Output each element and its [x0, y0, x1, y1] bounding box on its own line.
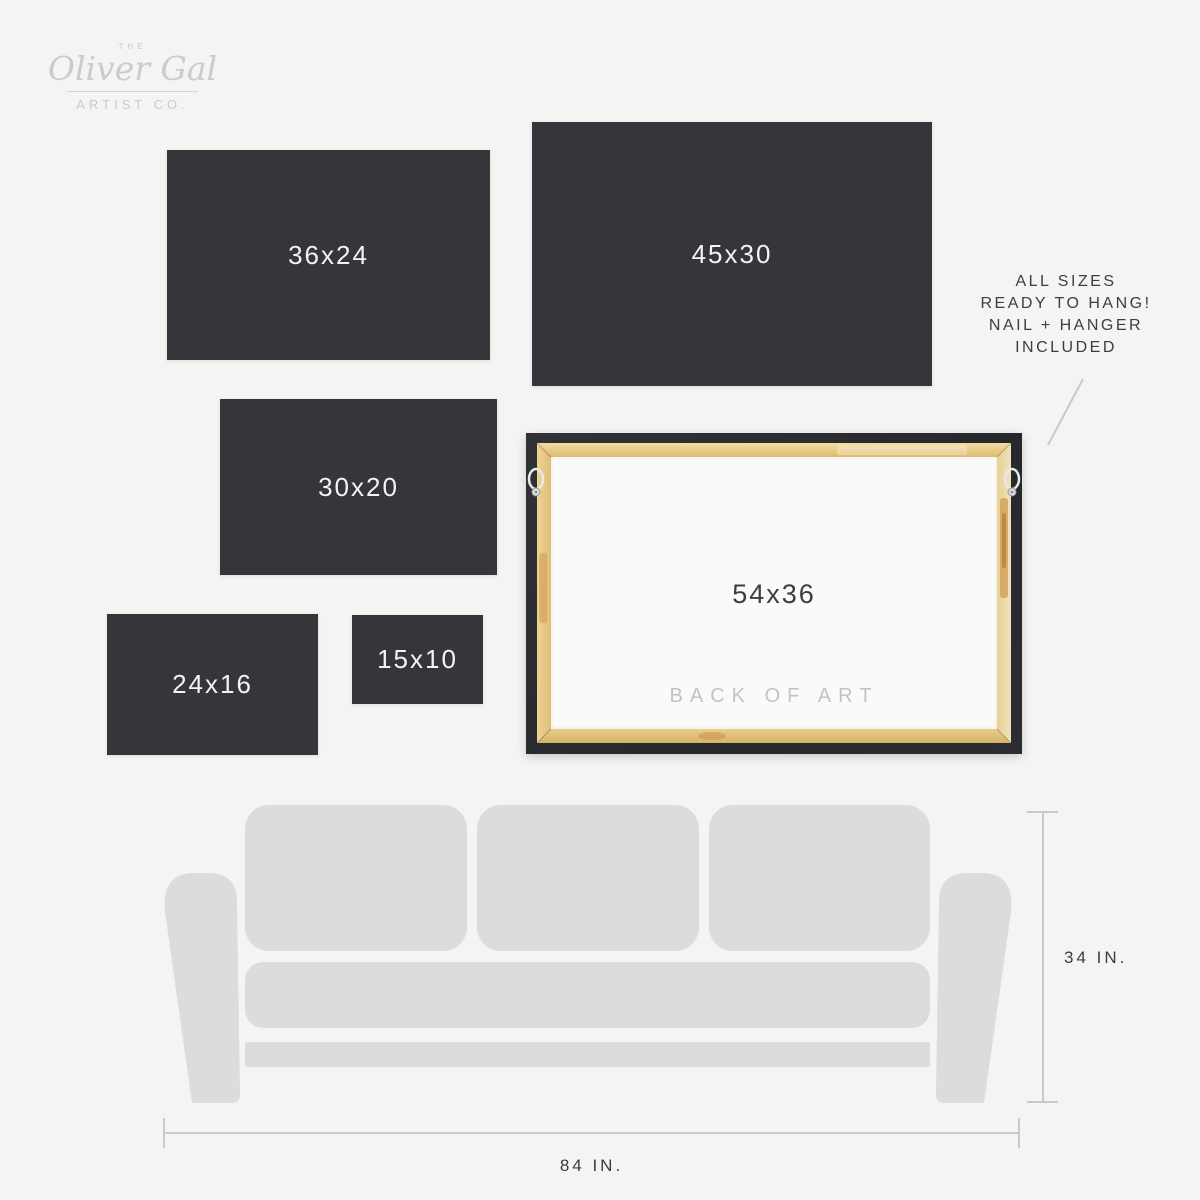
size-label: 15x10: [377, 644, 458, 675]
size-swatch-30x20: 30x20: [220, 399, 497, 575]
size-swatch-15x10: 15x10: [352, 615, 483, 704]
note-pointer-line: [1040, 374, 1090, 452]
height-measure-cap-top: [1027, 811, 1058, 813]
d-ring-hanger-left-icon: [527, 466, 547, 502]
size-swatch-24x16: 24x16: [107, 614, 318, 755]
size-swatch-45x30: 45x30: [532, 122, 932, 386]
size-swatch-36x24: 36x24: [167, 150, 490, 360]
height-measure-line: [1042, 812, 1044, 1102]
size-label: 36x24: [288, 240, 369, 271]
note-line: NAIL + HANGER: [966, 315, 1166, 337]
ready-to-hang-note: ALL SIZES READY TO HANG! NAIL + HANGER I…: [966, 271, 1166, 359]
frame-size-label: 54x36: [526, 579, 1022, 610]
note-line: ALL SIZES: [966, 271, 1166, 293]
back-of-art-frame: 54x36 BACK OF ART: [526, 433, 1022, 754]
width-measure-cap-right: [1018, 1118, 1020, 1148]
sofa-base-bar: [245, 1042, 930, 1067]
oliver-gal-logo: THE Oliver Gal ARTIST CO.: [45, 42, 220, 112]
logo-divider: [67, 91, 198, 92]
sofa-armrest-left: [165, 873, 240, 1103]
logo-artist-co-text: ARTIST CO.: [45, 97, 220, 112]
sofa-back-cushion: [477, 805, 699, 951]
sofa-back-cushion: [709, 805, 930, 951]
width-measure-line: [163, 1132, 1020, 1134]
sofa-armrest-right: [936, 873, 1011, 1103]
logo-brand-name: Oliver Gal: [45, 52, 220, 87]
width-measure-cap-left: [163, 1118, 165, 1148]
sofa-seat-cushion: [245, 962, 930, 1028]
sofa-height-label: 34 IN.: [1064, 948, 1127, 968]
size-label: 24x16: [172, 669, 253, 700]
size-label: 45x30: [692, 239, 773, 270]
note-line: READY TO HANG!: [966, 293, 1166, 315]
d-ring-hanger-right-icon: [1001, 466, 1021, 502]
size-label: 30x20: [318, 472, 399, 503]
note-line: INCLUDED: [966, 337, 1166, 359]
sofa-illustration: [150, 800, 1030, 1120]
sofa-back-cushion: [245, 805, 467, 951]
back-of-art-caption: BACK OF ART: [526, 685, 1022, 708]
sofa-width-label: 84 IN.: [163, 1156, 1020, 1176]
height-measure-cap-bottom: [1027, 1101, 1058, 1103]
size-guide-page: THE Oliver Gal ARTIST CO. 36x2445x3030x2…: [0, 0, 1200, 1200]
